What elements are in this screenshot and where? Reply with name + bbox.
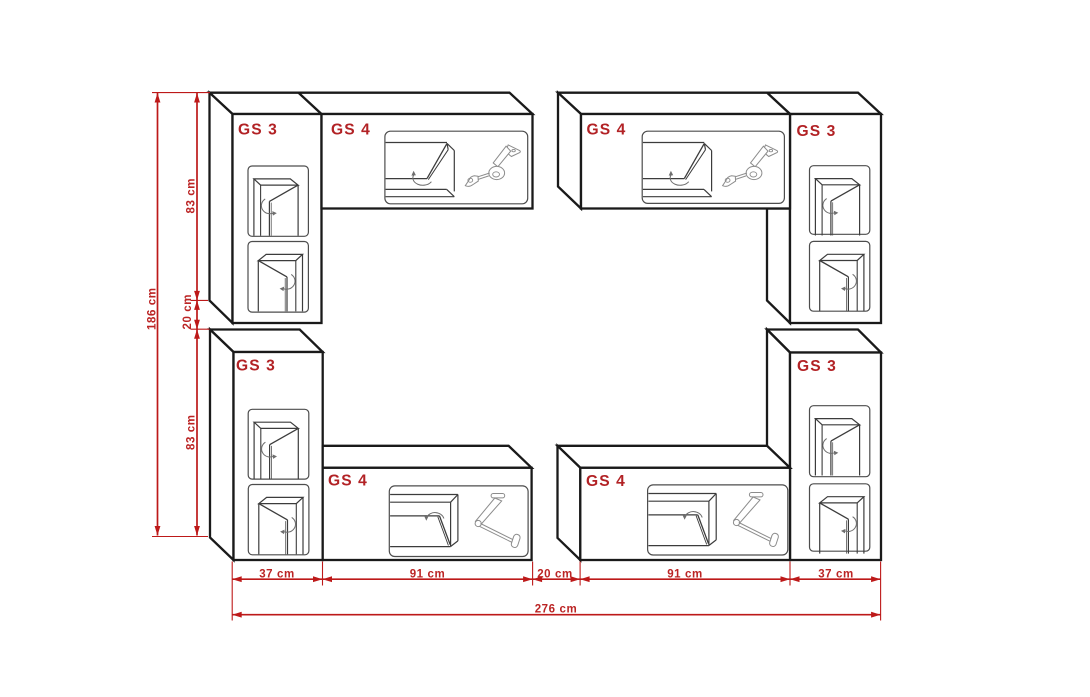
svg-text:GS 4: GS 4 <box>587 122 627 139</box>
svg-text:GS 4: GS 4 <box>328 473 368 490</box>
svg-text:GS 4: GS 4 <box>586 473 626 490</box>
svg-text:37 cm: 37 cm <box>818 568 854 580</box>
svg-text:20 cm: 20 cm <box>182 294 194 330</box>
svg-text:83 cm: 83 cm <box>186 414 198 450</box>
svg-text:GS 3: GS 3 <box>797 358 837 375</box>
svg-text:20 cm: 20 cm <box>537 568 573 580</box>
svg-text:186 cm: 186 cm <box>147 287 159 330</box>
svg-text:GS 3: GS 3 <box>238 122 278 139</box>
svg-text:37 cm: 37 cm <box>259 568 295 580</box>
svg-text:91 cm: 91 cm <box>410 568 446 580</box>
svg-text:GS 3: GS 3 <box>797 123 837 140</box>
svg-text:GS 3: GS 3 <box>236 358 276 375</box>
svg-text:GS 4: GS 4 <box>331 122 371 139</box>
svg-text:91 cm: 91 cm <box>667 568 703 580</box>
svg-text:83 cm: 83 cm <box>186 178 198 214</box>
svg-text:276 cm: 276 cm <box>535 603 578 615</box>
